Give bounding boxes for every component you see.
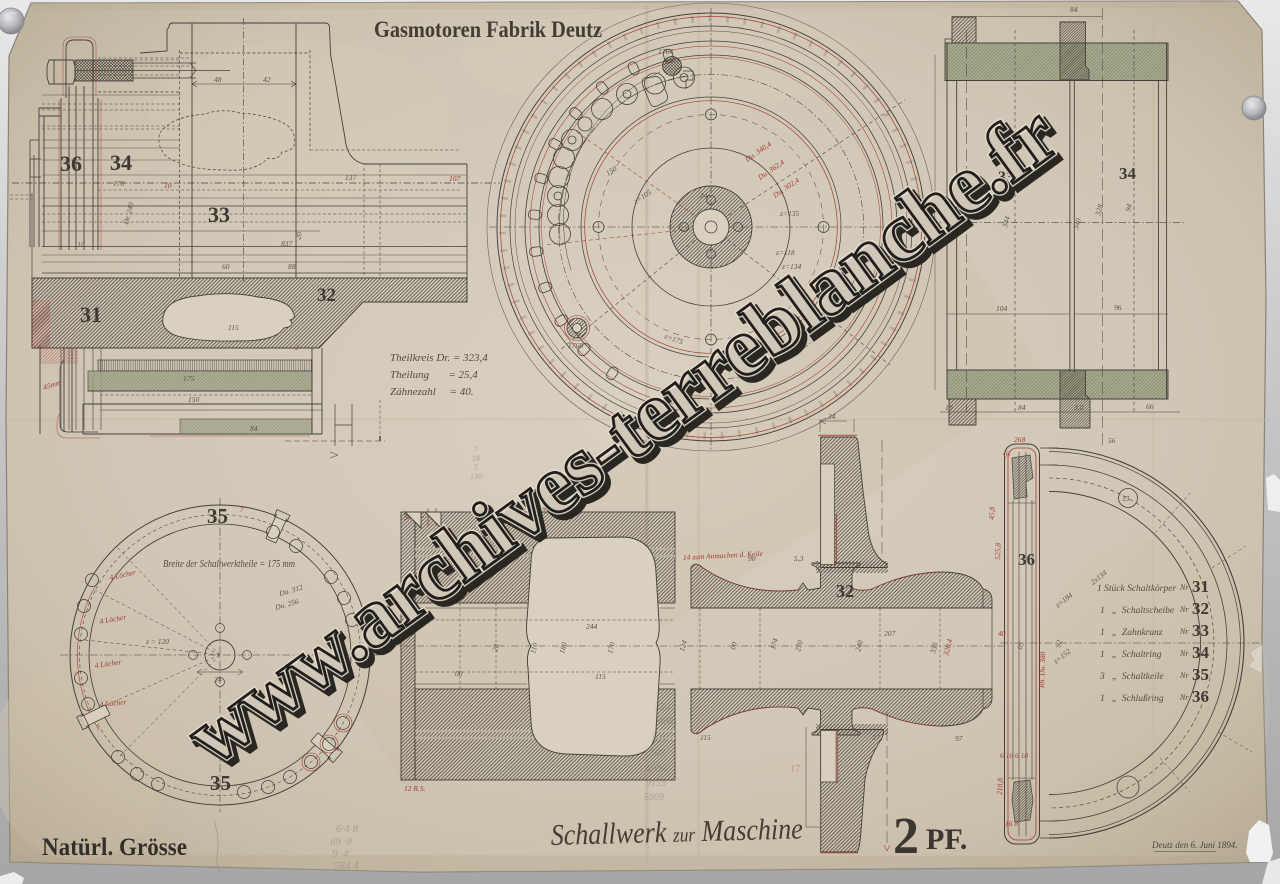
- svg-text:40: 40: [998, 629, 1006, 638]
- svg-text:Nr: Nr: [1179, 583, 1189, 592]
- svg-text:16 8: 16 8: [1005, 819, 1018, 828]
- svg-text:56: 56: [1108, 436, 1116, 445]
- svg-text:PF.: PF.: [926, 823, 967, 856]
- svg-text:Nr: Nr: [1179, 671, 1189, 680]
- svg-text:5: 5: [474, 463, 478, 472]
- svg-text:96: 96: [1114, 303, 1122, 312]
- svg-text:1 „ Schaltring: 1 „ Schaltring: [1100, 650, 1162, 660]
- svg-text:1 „ Schaltscheibe: 1 „ Schaltscheibe: [1100, 606, 1174, 616]
- svg-text:32: 32: [1192, 599, 1209, 618]
- svg-text:34: 34: [827, 412, 836, 421]
- svg-text:17: 17: [790, 764, 801, 775]
- svg-text:00: 00: [455, 669, 463, 678]
- svg-text:5,3: 5,3: [794, 554, 804, 563]
- svg-text:268: 268: [1014, 435, 1026, 444]
- svg-text:104: 104: [996, 304, 1008, 313]
- svg-text:829: 829: [652, 734, 667, 745]
- svg-text:7: 7: [240, 505, 244, 514]
- svg-text:84: 84: [1070, 5, 1078, 14]
- svg-text:88: 88: [288, 262, 296, 271]
- svg-text:525,8: 525,8: [993, 543, 1003, 560]
- svg-text:42: 42: [263, 75, 271, 84]
- svg-text:1 „ Zahnkranz: 1 „ Zahnkranz: [1100, 628, 1163, 638]
- svg-text:66: 66: [1146, 402, 1154, 411]
- svg-text:10: 10: [164, 181, 172, 190]
- svg-text:584 4: 584 4: [334, 860, 359, 872]
- svg-text:6 16 6 10: 6 16 6 10: [1000, 751, 1028, 760]
- svg-text:137: 137: [345, 173, 357, 182]
- svg-text:115: 115: [700, 733, 711, 742]
- svg-text:33: 33: [208, 202, 230, 227]
- svg-text:9159: 9159: [646, 778, 666, 789]
- svg-text:Nr: Nr: [1179, 605, 1189, 614]
- svg-text:5869: 5869: [644, 792, 664, 803]
- svg-text:Nr: Nr: [1179, 693, 1189, 702]
- svg-text:z = 120: z = 120: [145, 637, 169, 646]
- svg-text:3,0: 3,0: [1073, 403, 1084, 412]
- svg-text:84: 84: [1018, 403, 1026, 412]
- svg-text:9··4: 9··4: [332, 848, 349, 860]
- svg-text:34: 34: [1192, 643, 1210, 662]
- svg-text:48: 48: [214, 75, 222, 84]
- svg-text:115: 115: [595, 672, 606, 681]
- svg-text:115: 115: [228, 323, 239, 332]
- svg-text:207: 207: [884, 629, 896, 638]
- svg-text:837: 837: [281, 239, 293, 248]
- svg-text:688: 688: [650, 748, 665, 759]
- svg-text:36: 36: [1018, 550, 1035, 569]
- svg-text:84: 84: [250, 424, 258, 433]
- svg-text:35: 35: [1192, 665, 1209, 684]
- svg-text:37: 37: [871, 733, 880, 742]
- svg-text:Breite der Schaltwerktheile =: Breite der Schaltwerktheile = 175 mm: [163, 559, 295, 570]
- svg-text:60: 60: [222, 262, 230, 271]
- svg-text:2: 2: [295, 343, 299, 352]
- svg-text:Natürl. Grösse: Natürl. Grösse: [42, 834, 187, 861]
- svg-text:Nr: Nr: [1179, 627, 1189, 636]
- svg-text:Deutz den 6. Juni 1894.: Deutz den 6. Juni 1894.: [1151, 840, 1238, 850]
- svg-text:175: 175: [183, 374, 195, 383]
- svg-text:6908: 6908: [646, 764, 666, 775]
- svg-text:z=135: z=135: [779, 209, 799, 218]
- svg-text:69 ·8: 69 ·8: [330, 836, 353, 848]
- svg-text:36: 36: [60, 151, 82, 176]
- svg-text:Theilung = 25,4: Theilung = 25,4: [390, 369, 478, 381]
- svg-text:32: 32: [317, 285, 336, 306]
- svg-text:Zähnezahl = 40.: Zähnezahl = 40.: [390, 386, 474, 398]
- svg-text:16: 16: [472, 454, 480, 463]
- svg-text:1 „ Schlußring: 1 „ Schlußring: [1100, 693, 1164, 704]
- svg-text:13: 13: [1122, 494, 1130, 503]
- svg-text:244: 244: [586, 622, 598, 631]
- svg-text:408: 408: [658, 716, 673, 727]
- svg-text:1764: 1764: [658, 47, 673, 56]
- svg-text:24: 24: [700, 191, 708, 200]
- svg-text:220: 220: [655, 702, 670, 713]
- svg-text:10: 10: [945, 403, 953, 412]
- svg-text:Gasmotoren Fabrik Deutz: Gasmotoren Fabrik Deutz: [374, 17, 602, 42]
- svg-text:2: 2: [893, 808, 919, 865]
- svg-text:33: 33: [1192, 621, 1209, 640]
- svg-text:Theilkreis Dr. = 323,4: Theilkreis Dr. = 323,4: [390, 352, 488, 364]
- svg-text:Nr: Nr: [1179, 649, 1189, 658]
- svg-text:1 Stück Schaltkörper: 1 Stück Schaltkörper: [1097, 584, 1176, 594]
- svg-text:218,8: 218,8: [995, 778, 1005, 795]
- svg-text:150: 150: [188, 395, 200, 404]
- svg-text:32: 32: [836, 581, 854, 601]
- svg-text:34: 34: [110, 150, 132, 175]
- svg-text:12 R.S.: 12 R.S.: [404, 784, 426, 793]
- svg-text:1768: 1768: [568, 341, 583, 350]
- svg-text:34: 34: [1119, 164, 1137, 183]
- svg-text:35: 35: [207, 504, 228, 528]
- svg-text:45,8: 45,8: [987, 506, 996, 520]
- svg-text:3 „ Schaltkeile: 3 „ Schaltkeile: [1099, 672, 1164, 682]
- svg-text:110: 110: [74, 240, 85, 249]
- svg-text:6·4·8: 6·4·8: [336, 823, 359, 835]
- svg-text:97: 97: [955, 734, 963, 743]
- svg-text:170: 170: [113, 179, 125, 188]
- svg-text:Rh. Du. 380: Rh. Du. 380: [1037, 651, 1047, 689]
- svg-text:107: 107: [449, 174, 461, 183]
- svg-text:36: 36: [1192, 687, 1209, 706]
- svg-text:31: 31: [1192, 577, 1209, 596]
- svg-text:31: 31: [80, 302, 102, 327]
